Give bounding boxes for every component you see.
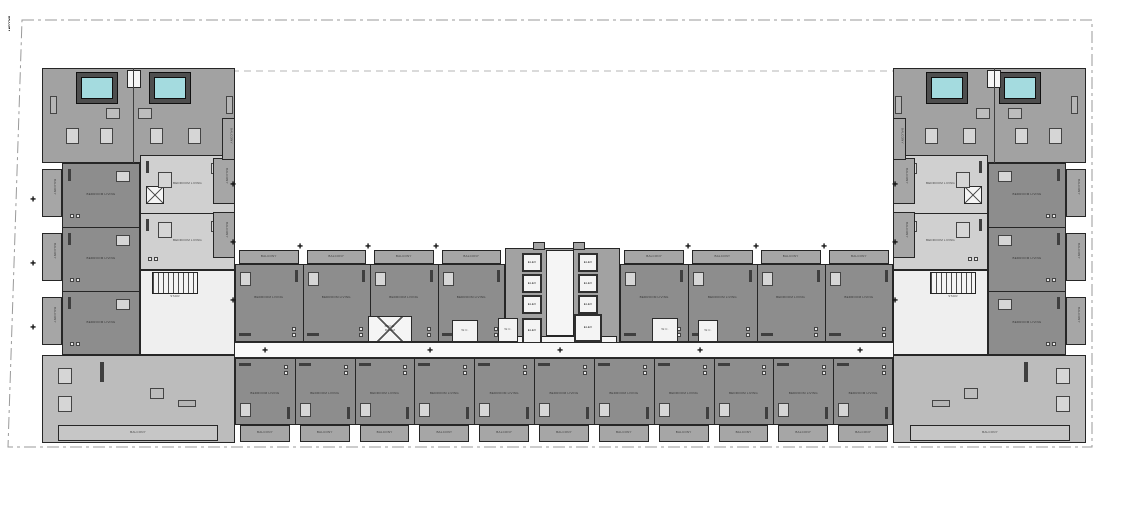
survey-marker: ✚	[30, 197, 36, 204]
unit-divider	[414, 358, 415, 425]
unit-label: BEDROOM LIVING	[68, 257, 134, 260]
shaft-x	[146, 186, 164, 204]
bed	[539, 403, 550, 417]
fixture	[70, 342, 74, 346]
kitchen-strip	[598, 363, 610, 366]
balcony-label: BALCONY	[900, 222, 908, 238]
fixture	[344, 371, 348, 375]
bed	[599, 403, 610, 417]
unit-divider	[654, 358, 655, 425]
pool-water	[81, 77, 113, 99]
unit-divider	[688, 264, 689, 342]
fixture	[643, 365, 647, 369]
floor-plan: BALCONYBEDROOM LIVINGBALCONYBEDROOM LIVI…	[0, 0, 1128, 515]
bed	[419, 403, 430, 417]
unit-divider	[438, 264, 439, 342]
kitchen-strip	[829, 333, 841, 336]
unit-divider	[773, 358, 774, 425]
fixture	[523, 371, 527, 375]
unit-label: BEDROOM LIVING	[657, 392, 711, 395]
bed	[1049, 128, 1062, 144]
kitchen-strip	[239, 333, 251, 336]
kitchen-strip	[68, 169, 71, 181]
balcony-label: BALCONY	[624, 255, 684, 258]
unit-divider	[825, 264, 826, 342]
closet-strip	[295, 270, 298, 282]
balcony-label: BALCONY	[692, 255, 752, 258]
closet-strip	[466, 407, 469, 419]
closet-strip	[765, 407, 768, 419]
survey-marker: ✚	[821, 244, 827, 251]
unit-divider	[62, 291, 140, 292]
survey-marker: ✚	[262, 348, 268, 355]
bed	[830, 272, 841, 286]
fixture	[1052, 214, 1056, 218]
closet-strip	[586, 407, 589, 419]
fixture	[1046, 214, 1050, 218]
balcony-label: BALCONY	[1072, 243, 1080, 259]
elevator-cab: ELEV	[522, 295, 542, 314]
elevator-lobby	[546, 250, 574, 336]
survey-marker: ✚	[365, 244, 371, 251]
table	[1008, 108, 1022, 119]
table	[976, 108, 990, 119]
fixture	[1046, 342, 1050, 346]
bed	[443, 272, 454, 286]
fixture	[76, 278, 80, 282]
bed	[116, 299, 130, 310]
balcony-label: BALCONY	[48, 307, 56, 323]
closet-strip	[706, 407, 709, 419]
unit-label: BEDROOM LIVING	[477, 392, 531, 395]
balcony-label: BALCONY	[829, 255, 889, 258]
closet-strip	[406, 407, 409, 419]
unit-label: BEDROOM LIVING	[373, 296, 435, 299]
fixture	[76, 214, 80, 218]
bed	[693, 272, 704, 286]
fixture	[968, 257, 972, 261]
balcony-label: BALCONY	[1072, 179, 1080, 195]
unit-divider	[303, 264, 304, 342]
table	[138, 108, 152, 119]
closet-strip	[430, 270, 433, 282]
unit-divider	[295, 358, 296, 425]
balcony-label: BALCONY	[220, 168, 228, 184]
elevator-label: ELEV	[528, 282, 536, 285]
bed	[158, 222, 172, 238]
balcony-label: BALCONY	[659, 431, 709, 434]
survey-marker: ✚	[230, 240, 236, 247]
survey-marker: ✚	[685, 244, 691, 251]
fixture	[746, 333, 750, 337]
sofa	[932, 400, 950, 407]
balcony-label: BALCONY	[240, 431, 290, 434]
bed	[998, 235, 1012, 246]
survey-marker: ✚	[892, 240, 898, 247]
unit-divider	[988, 227, 1066, 228]
sofa	[895, 96, 902, 114]
balcony-label: BALCONY	[48, 179, 56, 195]
unit-divider	[355, 358, 356, 425]
sofa	[226, 96, 233, 114]
fixture	[822, 365, 826, 369]
kitchen-strip	[979, 219, 982, 231]
balcony-label: BALCONY	[761, 255, 821, 258]
closet-strip	[885, 407, 888, 419]
fixture	[703, 365, 707, 369]
balcony-label: BALCONY	[300, 431, 350, 434]
unit-divider	[988, 291, 1066, 292]
elevator-label: ELEV	[584, 326, 592, 329]
elevator-label: ELEV	[528, 303, 536, 306]
survey-marker: ✚	[557, 348, 563, 355]
fixture	[762, 371, 766, 375]
fixture	[882, 365, 886, 369]
balcony-label: BALCONY	[360, 431, 410, 434]
survey-marker: ✚	[433, 244, 439, 251]
kitchen-strip	[777, 363, 789, 366]
unit-label: BEDROOM LIVING	[717, 392, 771, 395]
wall-strip	[133, 68, 134, 163]
unit-label: BEDROOM LIVING	[760, 296, 822, 299]
elevator-cab: ELEV	[578, 274, 598, 293]
unit-label: BEDROOM LIVING	[238, 392, 292, 395]
closet-strip	[680, 270, 683, 282]
bed	[719, 403, 730, 417]
fixture	[814, 327, 818, 331]
mech-room-label: MECH.	[368, 325, 412, 328]
kitchen-strip	[299, 363, 311, 366]
unit-label: BEDROOM LIVING	[306, 296, 368, 299]
bed	[116, 235, 130, 246]
closet-strip	[497, 270, 500, 282]
survey-marker: ✚	[857, 348, 863, 355]
bed	[240, 403, 251, 417]
fixture	[1046, 278, 1050, 282]
balcony-label: BALCONY	[719, 431, 769, 434]
service-room-label: W.C.	[652, 328, 678, 331]
balcony-label: BALCONY	[442, 255, 502, 258]
fixture	[284, 365, 288, 369]
balcony-label: BALCONY	[58, 431, 218, 434]
balcony-label: BALCONY	[896, 128, 904, 144]
sofa	[178, 400, 196, 407]
balcony-label: BALCONY	[307, 255, 367, 258]
closet-strip	[749, 270, 752, 282]
balcony-label: BALCONY	[374, 255, 434, 258]
bed	[963, 128, 976, 144]
sofa	[1071, 96, 1078, 114]
bed	[625, 272, 636, 286]
service-room-label: W.C.	[452, 329, 478, 332]
unit-label: BEDROOM LIVING	[441, 296, 503, 299]
stair-label: STAIR	[152, 295, 198, 298]
unit-label: BEDROOM LIVING	[358, 392, 412, 395]
fixture	[154, 257, 158, 261]
fixture	[523, 365, 527, 369]
bed	[925, 128, 938, 144]
wall-strip	[100, 362, 104, 382]
kitchen-strip	[624, 333, 636, 336]
fixture	[822, 371, 826, 375]
bed	[150, 128, 163, 144]
fixture	[1052, 278, 1056, 282]
pool-water	[1004, 77, 1036, 99]
mech-room-label: ROOM	[368, 329, 412, 332]
unit-label: BEDROOM LIVING	[417, 392, 471, 395]
stair	[152, 272, 198, 294]
unit-divider	[62, 227, 140, 228]
bed	[1056, 368, 1070, 384]
kitchen-strip	[68, 297, 71, 309]
closet-strip	[526, 407, 529, 419]
kitchen-strip	[1057, 297, 1060, 309]
bed	[1056, 396, 1070, 412]
bed	[100, 128, 113, 144]
unit-label: BEDROOM LIVING	[994, 257, 1060, 260]
survey-marker: ✚	[697, 348, 703, 355]
fixture	[746, 327, 750, 331]
survey-marker: ✚	[427, 348, 433, 355]
pool-water	[154, 77, 186, 99]
kitchen-strip	[239, 363, 251, 366]
balcony-label: BALCONY	[419, 431, 469, 434]
fixture	[583, 365, 587, 369]
unit-label: BEDROOM LIVING	[623, 296, 685, 299]
unit-label: BEDROOM LIVING	[238, 296, 300, 299]
balcony-label: BALCONY	[900, 168, 908, 184]
unit-divider	[594, 358, 595, 425]
unit-divider	[714, 358, 715, 425]
closet-strip	[646, 407, 649, 419]
bed	[158, 172, 172, 188]
service-room-label: W.C.	[498, 328, 518, 331]
unit-label: BEDROOM LIVING	[298, 392, 352, 395]
fixture	[882, 327, 886, 331]
elevator-cab: ELEV	[574, 314, 602, 342]
unit-divider	[474, 358, 475, 425]
kitchen-strip	[146, 161, 149, 173]
closet-strip	[817, 270, 820, 282]
balcony-label: BALCONY	[225, 128, 233, 144]
bed	[1015, 128, 1028, 144]
bed	[58, 368, 72, 384]
balcony-label: BALCONY	[7, 6, 10, 42]
corridor	[235, 342, 893, 358]
table	[150, 388, 164, 399]
bed	[360, 403, 371, 417]
wall-strip	[1024, 362, 1028, 382]
fixture	[403, 365, 407, 369]
balcony-label: BALCONY	[220, 222, 228, 238]
kitchen-strip	[658, 363, 670, 366]
unit-divider	[534, 358, 535, 425]
elevator-label: ELEV	[584, 261, 592, 264]
fixture	[292, 333, 296, 337]
kitchen-strip	[761, 333, 773, 336]
unit-label: BEDROOM LIVING	[776, 392, 830, 395]
kitchen-strip	[837, 363, 849, 366]
kitchen-strip	[68, 233, 71, 245]
bed	[375, 272, 386, 286]
kitchen-strip	[146, 219, 149, 231]
elevator-cab: ELEV	[578, 295, 598, 314]
closet-strip	[287, 407, 290, 419]
elevator-cab: ELEV	[522, 274, 542, 293]
pool-water	[931, 77, 963, 99]
unit-divider	[757, 264, 758, 342]
survey-marker: ✚	[30, 261, 36, 268]
balcony-label: BALCONY	[838, 431, 888, 434]
fixture	[344, 365, 348, 369]
unit-label: BEDROOM LIVING	[68, 193, 134, 196]
survey-marker: ✚	[753, 244, 759, 251]
closet-strip	[362, 270, 365, 282]
fixture	[463, 365, 467, 369]
unit-label: BEDROOM LIVING	[68, 321, 134, 324]
fixture	[703, 371, 707, 375]
unit-label: BEDROOM LIVING	[537, 392, 591, 395]
fixture	[284, 371, 288, 375]
kitchen-strip	[307, 333, 319, 336]
fixture	[427, 327, 431, 331]
unit-divider	[833, 358, 834, 425]
balcony-label: BALCONY	[778, 431, 828, 434]
balcony-label: BALCONY	[910, 431, 1070, 434]
bed	[778, 403, 789, 417]
unit-label: BEDROOM LIVING	[597, 392, 651, 395]
elevator-label: ELEV	[584, 303, 592, 306]
closet-strip	[885, 270, 888, 282]
fixture	[882, 371, 886, 375]
bed	[998, 299, 1012, 310]
fixture	[403, 371, 407, 375]
bed	[116, 171, 130, 182]
fixture	[427, 333, 431, 337]
stair	[930, 272, 976, 294]
survey-marker: ✚	[892, 298, 898, 305]
kitchen-strip	[1057, 169, 1060, 181]
survey-marker: ✚	[230, 182, 236, 189]
closet-strip	[825, 407, 828, 419]
elevator-label: ELEV	[528, 261, 536, 264]
fixture	[1052, 342, 1056, 346]
kitchen-strip	[979, 161, 982, 173]
fixture	[70, 278, 74, 282]
bed	[956, 222, 970, 238]
sofa	[50, 96, 57, 114]
unit-label: BEDROOM LIVING	[828, 296, 890, 299]
elevator-label: ELEV	[584, 282, 592, 285]
kitchen-strip	[359, 363, 371, 366]
bed	[762, 272, 773, 286]
stair-label: STAIR	[930, 295, 976, 298]
fixture	[583, 371, 587, 375]
closet-strip	[347, 407, 350, 419]
service-room-label: W.C.	[698, 329, 718, 332]
core-stub	[573, 242, 585, 250]
shaft	[127, 70, 141, 88]
bed	[240, 272, 251, 286]
fixture	[292, 327, 296, 331]
bed	[300, 403, 311, 417]
balcony-label: BALCONY	[479, 431, 529, 434]
unit-label: BEDROOM LIVING	[994, 321, 1060, 324]
bed	[308, 272, 319, 286]
kitchen-strip	[418, 363, 430, 366]
fixture	[76, 342, 80, 346]
survey-marker: ✚	[30, 325, 36, 332]
kitchen-strip	[538, 363, 550, 366]
fixture	[882, 333, 886, 337]
fixture	[463, 371, 467, 375]
bed	[998, 171, 1012, 182]
elevator-label: ELEV	[528, 329, 536, 332]
bed	[58, 396, 72, 412]
bed	[479, 403, 490, 417]
balcony-label: BALCONY	[539, 431, 589, 434]
unit-label: BEDROOM LIVING	[691, 296, 753, 299]
elevator-cab: ELEV	[578, 253, 598, 272]
bed	[188, 128, 201, 144]
fixture	[762, 365, 766, 369]
core-stub	[533, 242, 545, 250]
kitchen-strip	[1057, 233, 1060, 245]
balcony-label: BALCONY	[239, 255, 299, 258]
fixture	[359, 327, 363, 331]
bed	[956, 172, 970, 188]
survey-marker: ✚	[230, 298, 236, 305]
fixture	[974, 257, 978, 261]
fixture	[148, 257, 152, 261]
fixture	[643, 371, 647, 375]
fixture	[359, 333, 363, 337]
wall-strip	[994, 68, 995, 163]
bed	[66, 128, 79, 144]
survey-marker: ✚	[892, 182, 898, 189]
table	[964, 388, 978, 399]
elevator-cab: ELEV	[522, 318, 542, 344]
survey-marker: ✚	[297, 244, 303, 251]
shaft-x	[964, 186, 982, 204]
balcony-label: BALCONY	[48, 243, 56, 259]
fixture	[70, 214, 74, 218]
kitchen-strip	[478, 363, 490, 366]
elevator-cab: ELEV	[522, 253, 542, 272]
unit-label: BEDROOM LIVING	[836, 392, 890, 395]
kitchen-strip	[718, 363, 730, 366]
unit-label: BEDROOM LIVING	[994, 193, 1060, 196]
bed	[659, 403, 670, 417]
fixture	[814, 333, 818, 337]
bed	[838, 403, 849, 417]
table	[106, 108, 120, 119]
balcony-label: BALCONY	[1072, 307, 1080, 323]
balcony-label: BALCONY	[599, 431, 649, 434]
